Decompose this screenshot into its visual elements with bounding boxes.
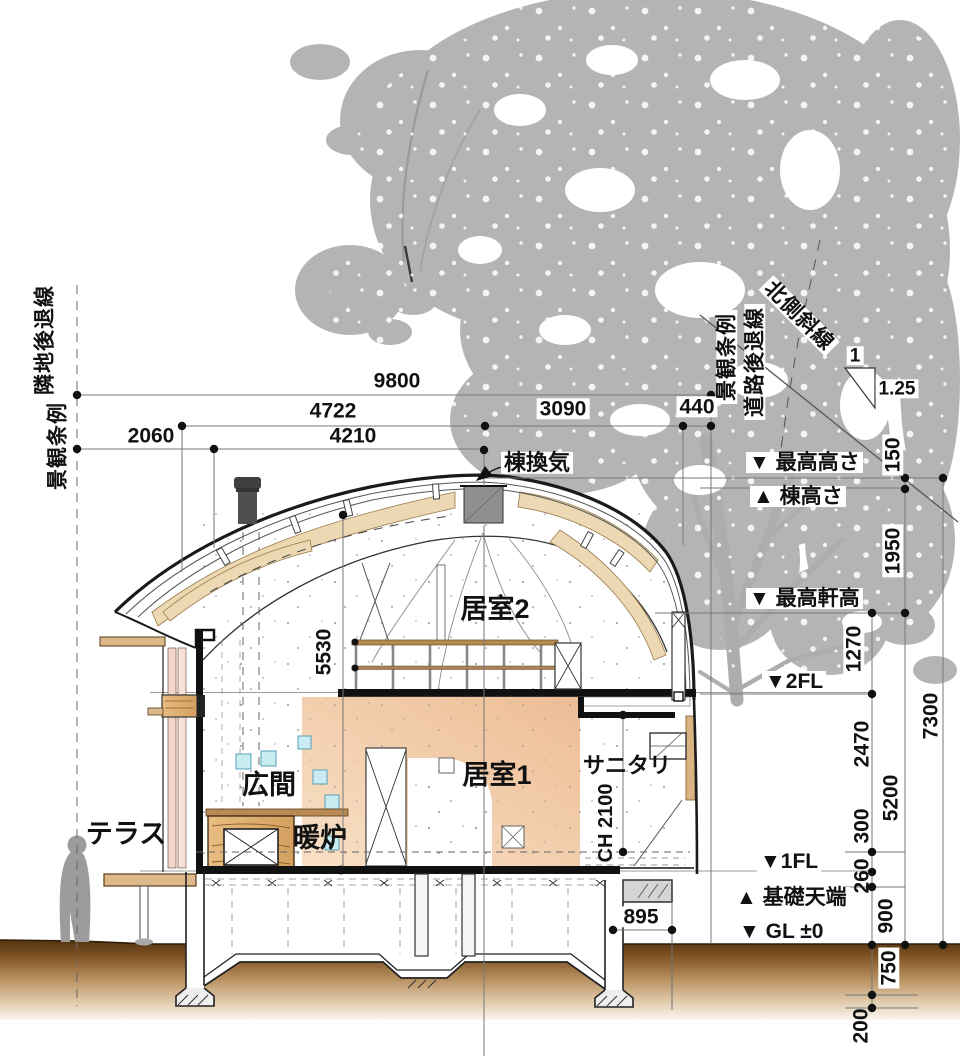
dim-road-setback: 440 (676, 396, 717, 417)
level-foundation-top: ▲ 基礎天端 (733, 887, 850, 908)
dim-overall-width: 9800 (371, 370, 424, 391)
dim-inner-span: 4210 (330, 425, 377, 446)
room-1: 居室1 (462, 762, 531, 790)
level-max-height: ▼ 最高高さ (746, 452, 863, 473)
dim-ceiling-height: CH 2100 (596, 784, 616, 863)
dim-ridge-clearance: 150 (882, 434, 903, 475)
dim-floor-buildup: 300 (851, 808, 872, 843)
left-setback-label: 隣地後退線 (34, 285, 55, 395)
ridge-vent-label: 棟換気 (501, 452, 573, 474)
right-setback-label: 道路後退線 (744, 304, 765, 420)
dim-footing-thickness: 200 (850, 1008, 871, 1043)
room-fireplace: 暖炉 (293, 825, 347, 853)
dim-left-span: 4722 (307, 400, 360, 421)
dim-gl-to-footing: 750 (878, 947, 899, 988)
level-2fl: ▼2FL (762, 671, 826, 692)
slope-run-label: 1 (847, 346, 864, 365)
dim-eave-to-2fl: 1270 (843, 623, 864, 676)
person-figure (60, 836, 91, 943)
dim-void-height: 5530 (313, 629, 334, 676)
room-2: 居室2 (460, 596, 529, 624)
slope-rise-label: 1.25 (876, 379, 919, 398)
section-drawing-page: 9800 4722 4210 2060 3090 440 895 150 195… (0, 0, 960, 1057)
room-terrace: テラス (86, 821, 166, 849)
dim-right-span: 3090 (537, 398, 590, 419)
room-hall: 広間 (242, 772, 296, 800)
left-ordinance-label: 景観条例 (47, 402, 68, 490)
chimney (234, 477, 261, 524)
level-gl: ▼ GL ±0 (736, 921, 826, 942)
dim-ridge-to-eave: 1950 (882, 525, 903, 578)
dim-fl1-to-foundation: 260 (851, 858, 872, 893)
terrace-deck (104, 874, 196, 946)
dim-2fl-span: 2470 (851, 721, 872, 768)
dim-eave-to-gl: 5200 (880, 775, 901, 822)
dim-terrace-offset: 2060 (128, 425, 175, 446)
dim-foundation-offset: 895 (620, 906, 661, 927)
dim-overall-height: 7300 (920, 690, 941, 743)
room-sanitary: サニタリ (583, 755, 671, 777)
level-1fl: ▼1FL (757, 851, 821, 872)
dim-foundation-to-gl: 900 (875, 898, 896, 933)
right-ordinance-label: 景観条例 (716, 310, 737, 404)
level-ridge-height: ▲ 棟高さ (750, 486, 846, 507)
level-max-eave-height: ▼ 最高軒高 (746, 588, 863, 609)
